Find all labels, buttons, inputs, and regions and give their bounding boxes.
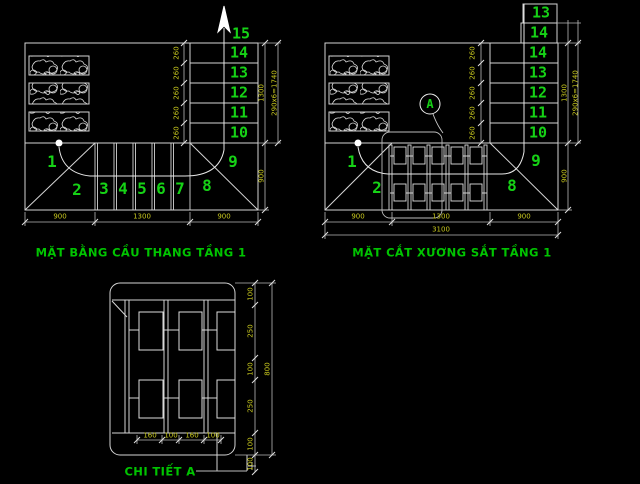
- dim-label: 3100: [432, 227, 450, 234]
- stone-hatch: [329, 83, 389, 104]
- steel-frame: [389, 145, 487, 210]
- dim-label: 1300: [562, 84, 569, 102]
- dim-label: 260: [174, 126, 181, 139]
- callout-a-label: A: [426, 98, 433, 110]
- dim-label: 260: [470, 66, 477, 79]
- step-number: 13: [230, 66, 248, 81]
- dim-label: 1300: [259, 84, 266, 102]
- dim-label: 800: [265, 362, 272, 375]
- dim-label: 260: [470, 86, 477, 99]
- callout-leader: [433, 114, 443, 133]
- step-number: 1: [47, 154, 57, 170]
- step-number: 7: [175, 181, 185, 197]
- step-number: 12: [230, 86, 248, 101]
- step-number: 15: [232, 27, 250, 42]
- step-number: 9: [228, 154, 238, 170]
- step-number: 11: [529, 106, 547, 121]
- step-number: 5: [137, 181, 147, 197]
- dim-label: 100: [248, 437, 255, 450]
- step-number: 8: [507, 178, 517, 194]
- dim-label: 900: [259, 169, 266, 182]
- dim-label: 900: [351, 214, 364, 221]
- dim-label: 290x6=1740: [272, 70, 279, 116]
- dim-label: 160: [185, 433, 198, 440]
- step-number: 14: [230, 46, 248, 61]
- dim-label: 250: [248, 324, 255, 337]
- section-linework: [325, 4, 558, 218]
- step-number: 11: [230, 106, 248, 121]
- drawing-title-detail: CHI TIẾT A: [124, 466, 195, 478]
- step-number: 2: [372, 180, 382, 196]
- dim-label: 260: [174, 46, 181, 59]
- step-number: 8: [202, 178, 212, 194]
- drawing-title-section: MẶT CẮT XƯƠNG SẮT TẦNG 1: [352, 247, 551, 259]
- dim-label: 260: [470, 46, 477, 59]
- dim-label: 1300: [133, 214, 151, 221]
- dim-label: 290x6=1740: [573, 70, 580, 116]
- step-number: 6: [156, 181, 166, 197]
- dim-label: 260: [470, 106, 477, 119]
- dim-label: 900: [517, 214, 530, 221]
- dim-label: 260: [174, 106, 181, 119]
- dim-label: 260: [174, 86, 181, 99]
- detail-dimensions: [134, 280, 276, 475]
- dim-label: 260: [470, 126, 477, 139]
- dim-label: 900: [562, 169, 569, 182]
- dim-label: 1300: [432, 214, 450, 221]
- dim-label: 100: [206, 433, 219, 440]
- dim-label: 250: [248, 399, 255, 412]
- detail-linework: [110, 283, 256, 471]
- step-number: 14: [529, 46, 547, 61]
- dim-label: 100: [248, 362, 255, 375]
- stone-hatch: [329, 112, 389, 131]
- dim-label: 100: [164, 433, 177, 440]
- step-number: 9: [531, 153, 541, 169]
- step-number: 10: [529, 126, 547, 141]
- stone-hatch: [29, 83, 89, 104]
- step-number: 12: [529, 86, 547, 101]
- walk-start-dot: [355, 140, 362, 147]
- step-number: 13: [529, 66, 547, 81]
- dim-label: 100: [248, 287, 255, 300]
- step-number: 1: [347, 154, 357, 170]
- step-number: 2: [72, 182, 82, 198]
- step-number: 14: [530, 26, 548, 41]
- step-number: 4: [118, 181, 128, 197]
- dim-label: 900: [53, 214, 66, 221]
- dim-label: 260: [174, 66, 181, 79]
- cad-canvas: 15 14 13 12 11 10 9 8 7 6 5 4 3 2 1 260 …: [0, 0, 640, 484]
- drawing-title-plan: MẶT BẰNG CẦU THANG TẦNG 1: [36, 247, 247, 259]
- dim-label: 900: [217, 214, 230, 221]
- walk-start-dot: [56, 140, 63, 147]
- stone-hatch: [329, 56, 389, 75]
- step-number: 3: [99, 181, 109, 197]
- step-number: 13: [532, 6, 550, 21]
- dim-label: 100: [248, 457, 255, 470]
- stone-hatch: [29, 56, 89, 75]
- step-number: 10: [230, 126, 248, 141]
- stone-hatch: [29, 112, 89, 131]
- dim-label: 160: [143, 433, 156, 440]
